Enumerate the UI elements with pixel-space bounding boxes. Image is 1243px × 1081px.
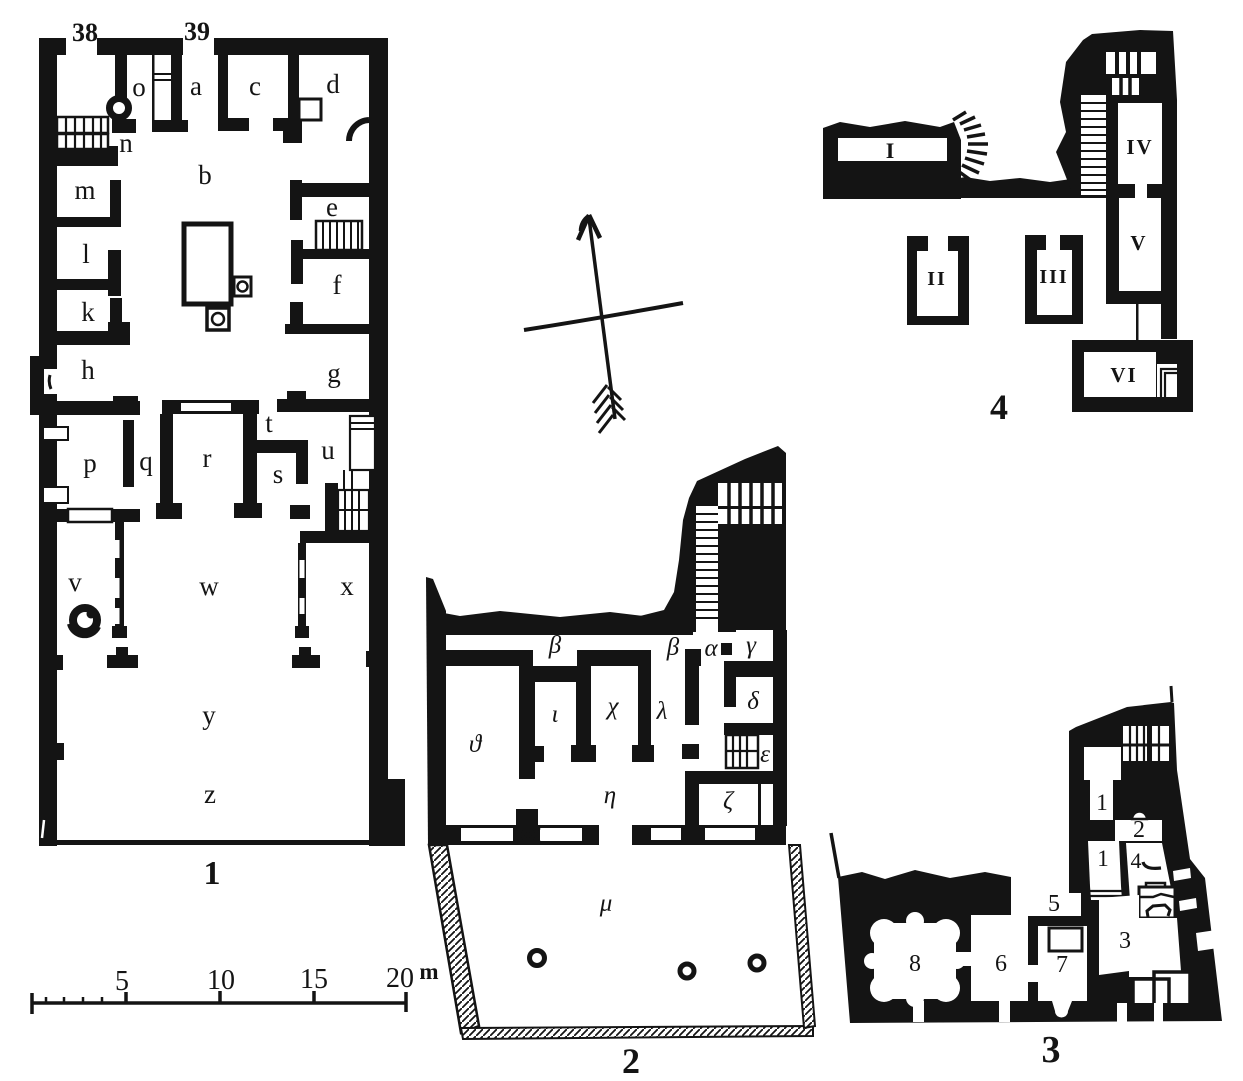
svg-text:ϑ: ϑ	[469, 731, 483, 758]
svg-text:3: 3	[1119, 928, 1131, 954]
svg-text:e: e	[326, 192, 338, 222]
svg-text:y: y	[202, 700, 216, 730]
svg-text:w: w	[199, 571, 219, 601]
svg-text:10: 10	[207, 965, 235, 996]
svg-text:t: t	[265, 408, 273, 438]
svg-text:f: f	[333, 270, 342, 300]
svg-text:o: o	[132, 72, 146, 102]
svg-text:λ: λ	[656, 698, 668, 725]
svg-text:VI: VI	[1110, 363, 1137, 387]
svg-text:7: 7	[1056, 952, 1068, 978]
svg-text:IV: IV	[1126, 135, 1153, 159]
svg-text:n: n	[119, 128, 133, 158]
svg-text:h: h	[81, 355, 95, 385]
svg-text:γ: γ	[746, 632, 757, 659]
svg-text:8: 8	[909, 951, 921, 977]
svg-text:m: m	[74, 175, 95, 205]
svg-text:4: 4	[990, 387, 1008, 427]
svg-text:χ: χ	[606, 693, 620, 720]
svg-text:α: α	[704, 635, 718, 662]
svg-text:III: III	[1039, 266, 1068, 288]
svg-text:38: 38	[72, 18, 98, 47]
svg-text:39: 39	[184, 17, 210, 46]
svg-text:r: r	[203, 443, 212, 473]
svg-text:1: 1	[1096, 790, 1108, 815]
svg-text:15: 15	[300, 964, 328, 995]
svg-text:l: l	[82, 239, 90, 269]
svg-text:ε: ε	[760, 741, 770, 768]
svg-text:20: 20	[386, 963, 414, 994]
svg-text:5: 5	[1048, 891, 1060, 917]
svg-text:d: d	[326, 69, 340, 99]
svg-text:m: m	[419, 959, 438, 984]
svg-text:2: 2	[622, 1041, 640, 1081]
svg-text:I: I	[886, 138, 895, 163]
svg-text:η: η	[604, 782, 616, 809]
svg-text:s: s	[273, 459, 284, 489]
svg-text:g: g	[327, 358, 341, 388]
svg-text:ι: ι	[552, 701, 559, 728]
svg-text:u: u	[321, 435, 335, 465]
svg-text:1: 1	[1097, 846, 1109, 871]
svg-text:b: b	[198, 160, 212, 190]
svg-text:β: β	[548, 632, 562, 659]
svg-text:v: v	[68, 567, 82, 597]
svg-text:3: 3	[1042, 1029, 1061, 1071]
svg-text:6: 6	[995, 951, 1007, 977]
svg-text:μ: μ	[599, 890, 613, 917]
svg-text:z: z	[204, 779, 216, 809]
svg-text:q: q	[139, 446, 153, 476]
svg-text:c: c	[249, 71, 261, 101]
svg-text:k: k	[81, 297, 95, 327]
svg-text:β: β	[666, 634, 680, 661]
svg-text:δ: δ	[747, 688, 759, 715]
svg-text:II: II	[927, 268, 947, 290]
svg-text:V: V	[1130, 231, 1145, 255]
svg-text:p: p	[83, 448, 97, 478]
svg-text:2: 2	[1133, 817, 1145, 843]
svg-text:1: 1	[204, 855, 221, 892]
svg-text:4: 4	[1131, 848, 1142, 873]
svg-text:5: 5	[115, 966, 129, 997]
svg-text:x: x	[340, 571, 354, 601]
svg-text:a: a	[190, 71, 202, 101]
